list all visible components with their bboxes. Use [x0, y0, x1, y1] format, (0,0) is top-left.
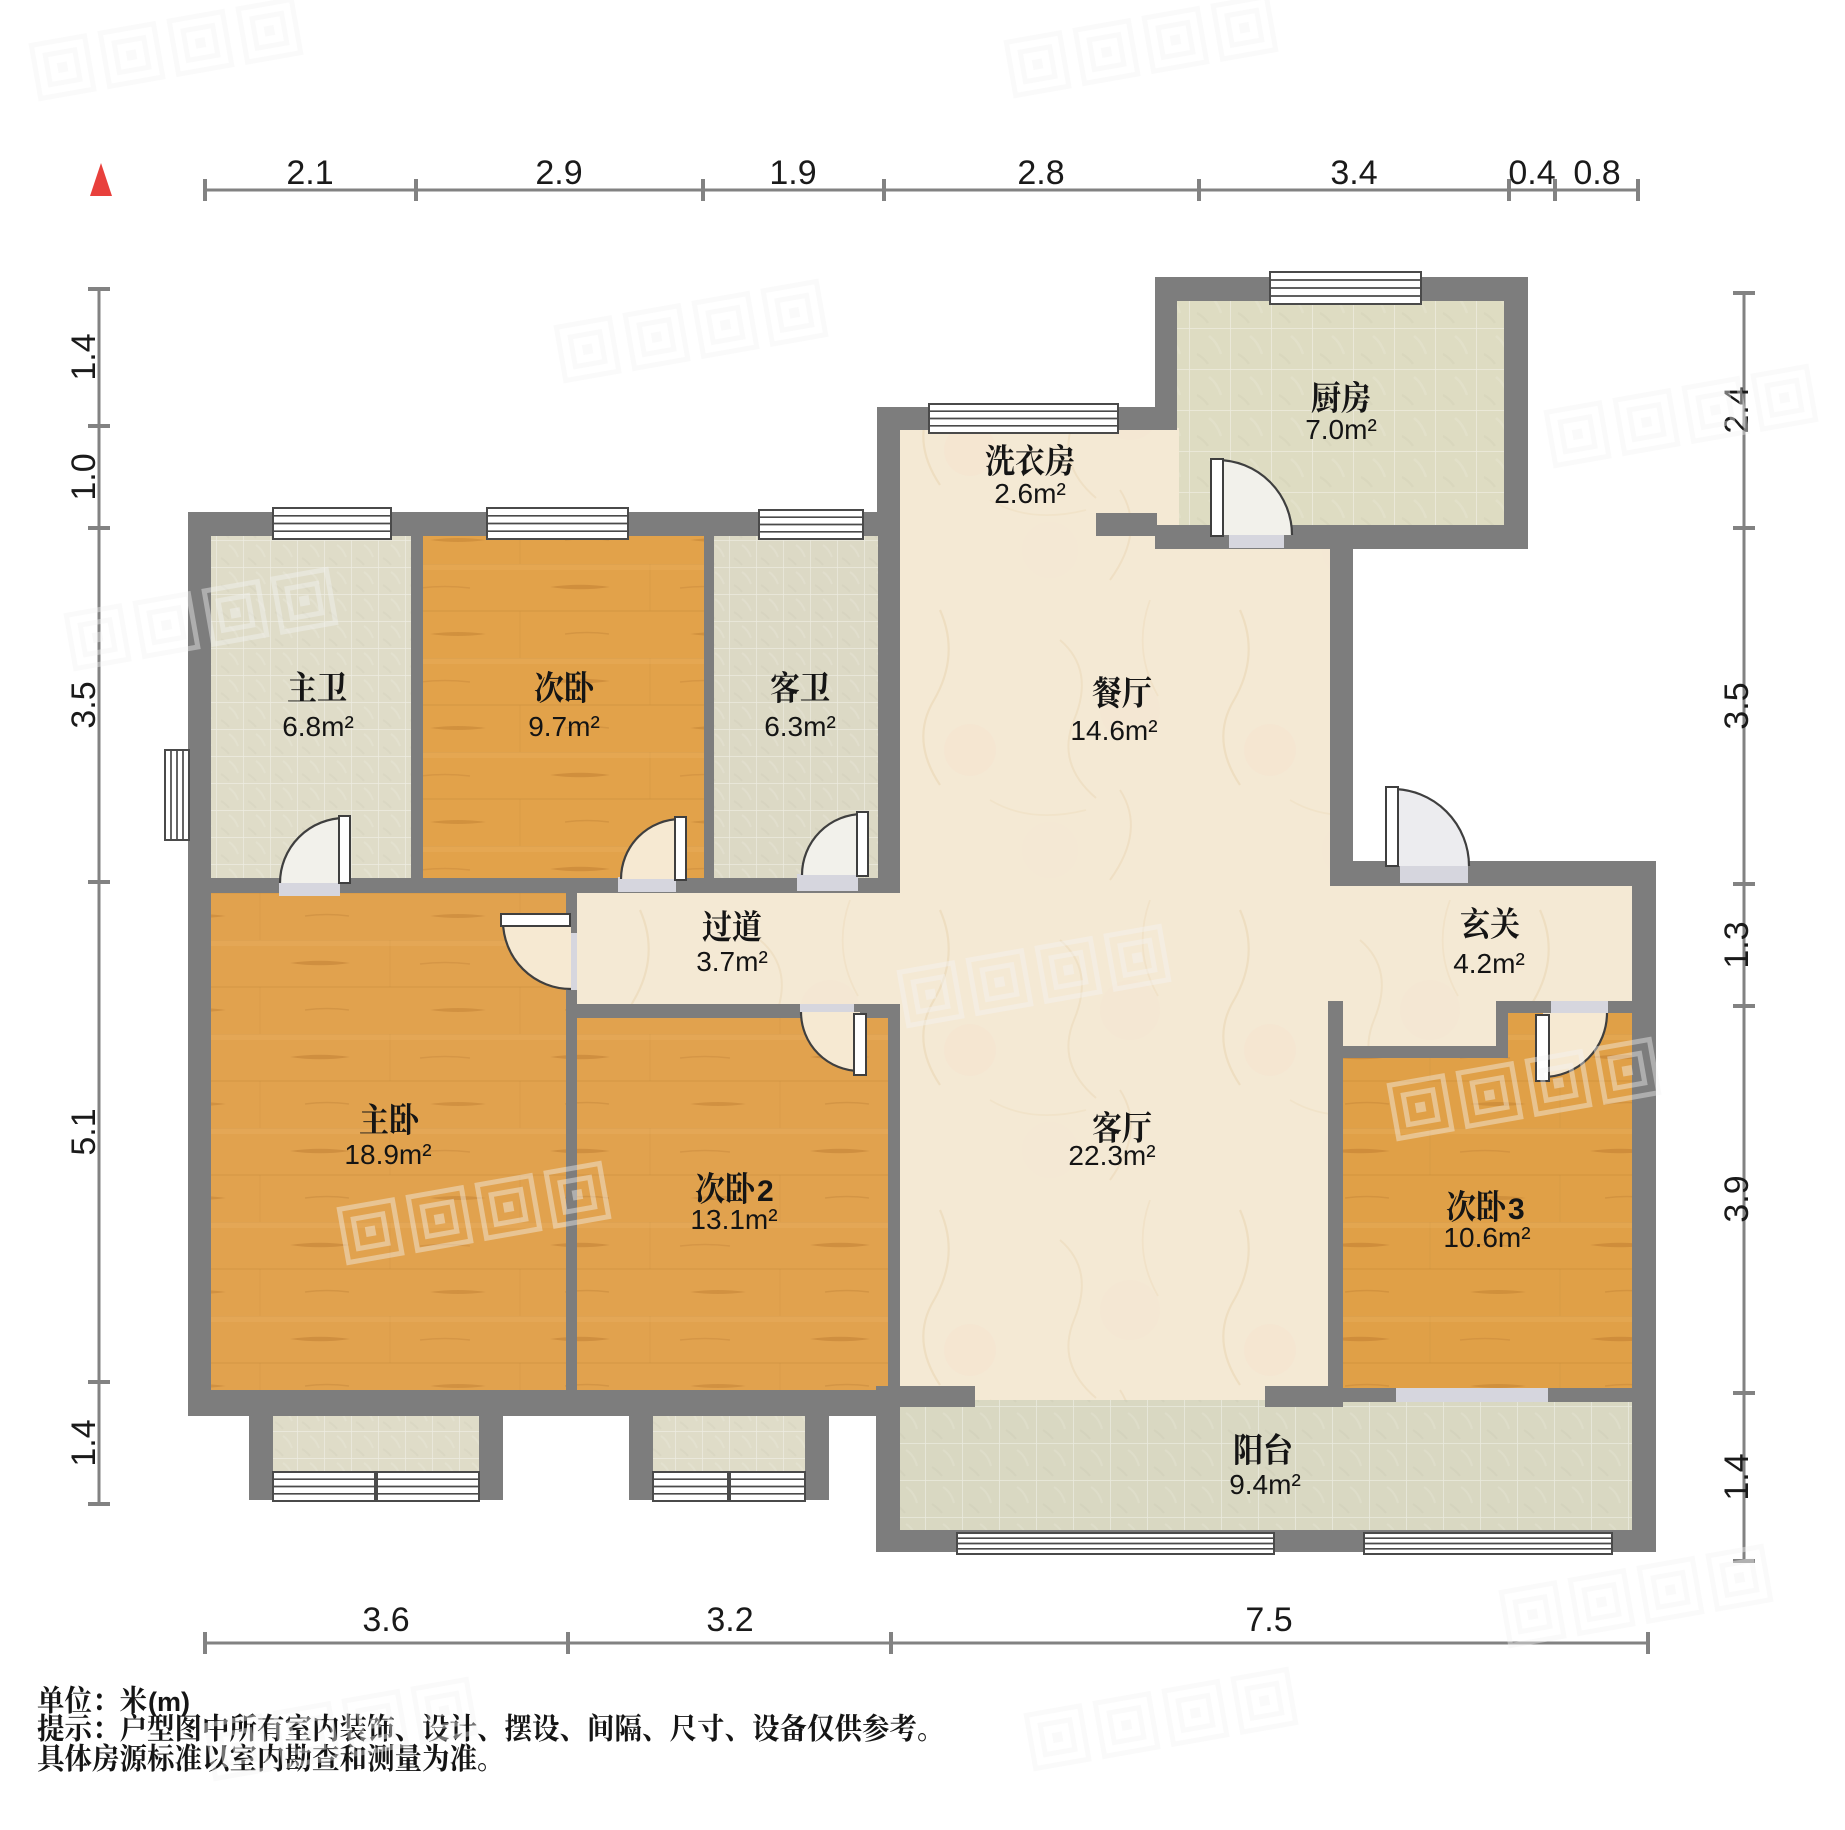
- svg-text:3.7m²: 3.7m²: [696, 946, 768, 977]
- svg-text:6.3m²: 6.3m²: [764, 711, 836, 742]
- svg-text:1.0: 1.0: [65, 453, 103, 500]
- svg-text:7.5: 7.5: [1245, 1601, 1292, 1639]
- svg-text:2.9: 2.9: [535, 154, 582, 192]
- svg-text:3.9: 3.9: [1718, 1175, 1756, 1222]
- svg-text:3.4: 3.4: [1330, 154, 1377, 192]
- svg-text:9.7m²: 9.7m²: [528, 711, 600, 742]
- svg-text:4.2m²: 4.2m²: [1453, 948, 1525, 979]
- svg-text:2.6m²: 2.6m²: [994, 478, 1066, 509]
- svg-text:13.1m²: 13.1m²: [690, 1204, 777, 1235]
- svg-text:14.6m²: 14.6m²: [1070, 715, 1157, 746]
- svg-text:3.5: 3.5: [1718, 682, 1756, 729]
- svg-text:3.2: 3.2: [706, 1601, 753, 1639]
- svg-text:10.6m²: 10.6m²: [1443, 1222, 1530, 1253]
- svg-text:7.0m²: 7.0m²: [1305, 414, 1377, 445]
- svg-text:1.9: 1.9: [769, 154, 816, 192]
- svg-text:3.6: 3.6: [362, 1601, 409, 1639]
- svg-text:2.8: 2.8: [1017, 154, 1064, 192]
- svg-text:2.1: 2.1: [286, 154, 333, 192]
- svg-text:1.4: 1.4: [65, 333, 103, 380]
- svg-text:1.3: 1.3: [1718, 921, 1756, 968]
- svg-text:6.8m²: 6.8m²: [282, 711, 354, 742]
- svg-text:(m): (m): [148, 1687, 190, 1717]
- svg-text:5.1: 5.1: [65, 1108, 103, 1155]
- svg-text:18.9m²: 18.9m²: [344, 1139, 431, 1170]
- svg-text:9.4m²: 9.4m²: [1229, 1469, 1301, 1500]
- svg-text:22.3m²: 22.3m²: [1068, 1140, 1155, 1171]
- svg-text:1.4: 1.4: [65, 1419, 103, 1466]
- svg-text:0.8: 0.8: [1573, 154, 1620, 192]
- svg-text:1.4: 1.4: [1718, 1453, 1756, 1500]
- svg-text:3.5: 3.5: [65, 681, 103, 728]
- svg-text:0.4: 0.4: [1508, 154, 1555, 192]
